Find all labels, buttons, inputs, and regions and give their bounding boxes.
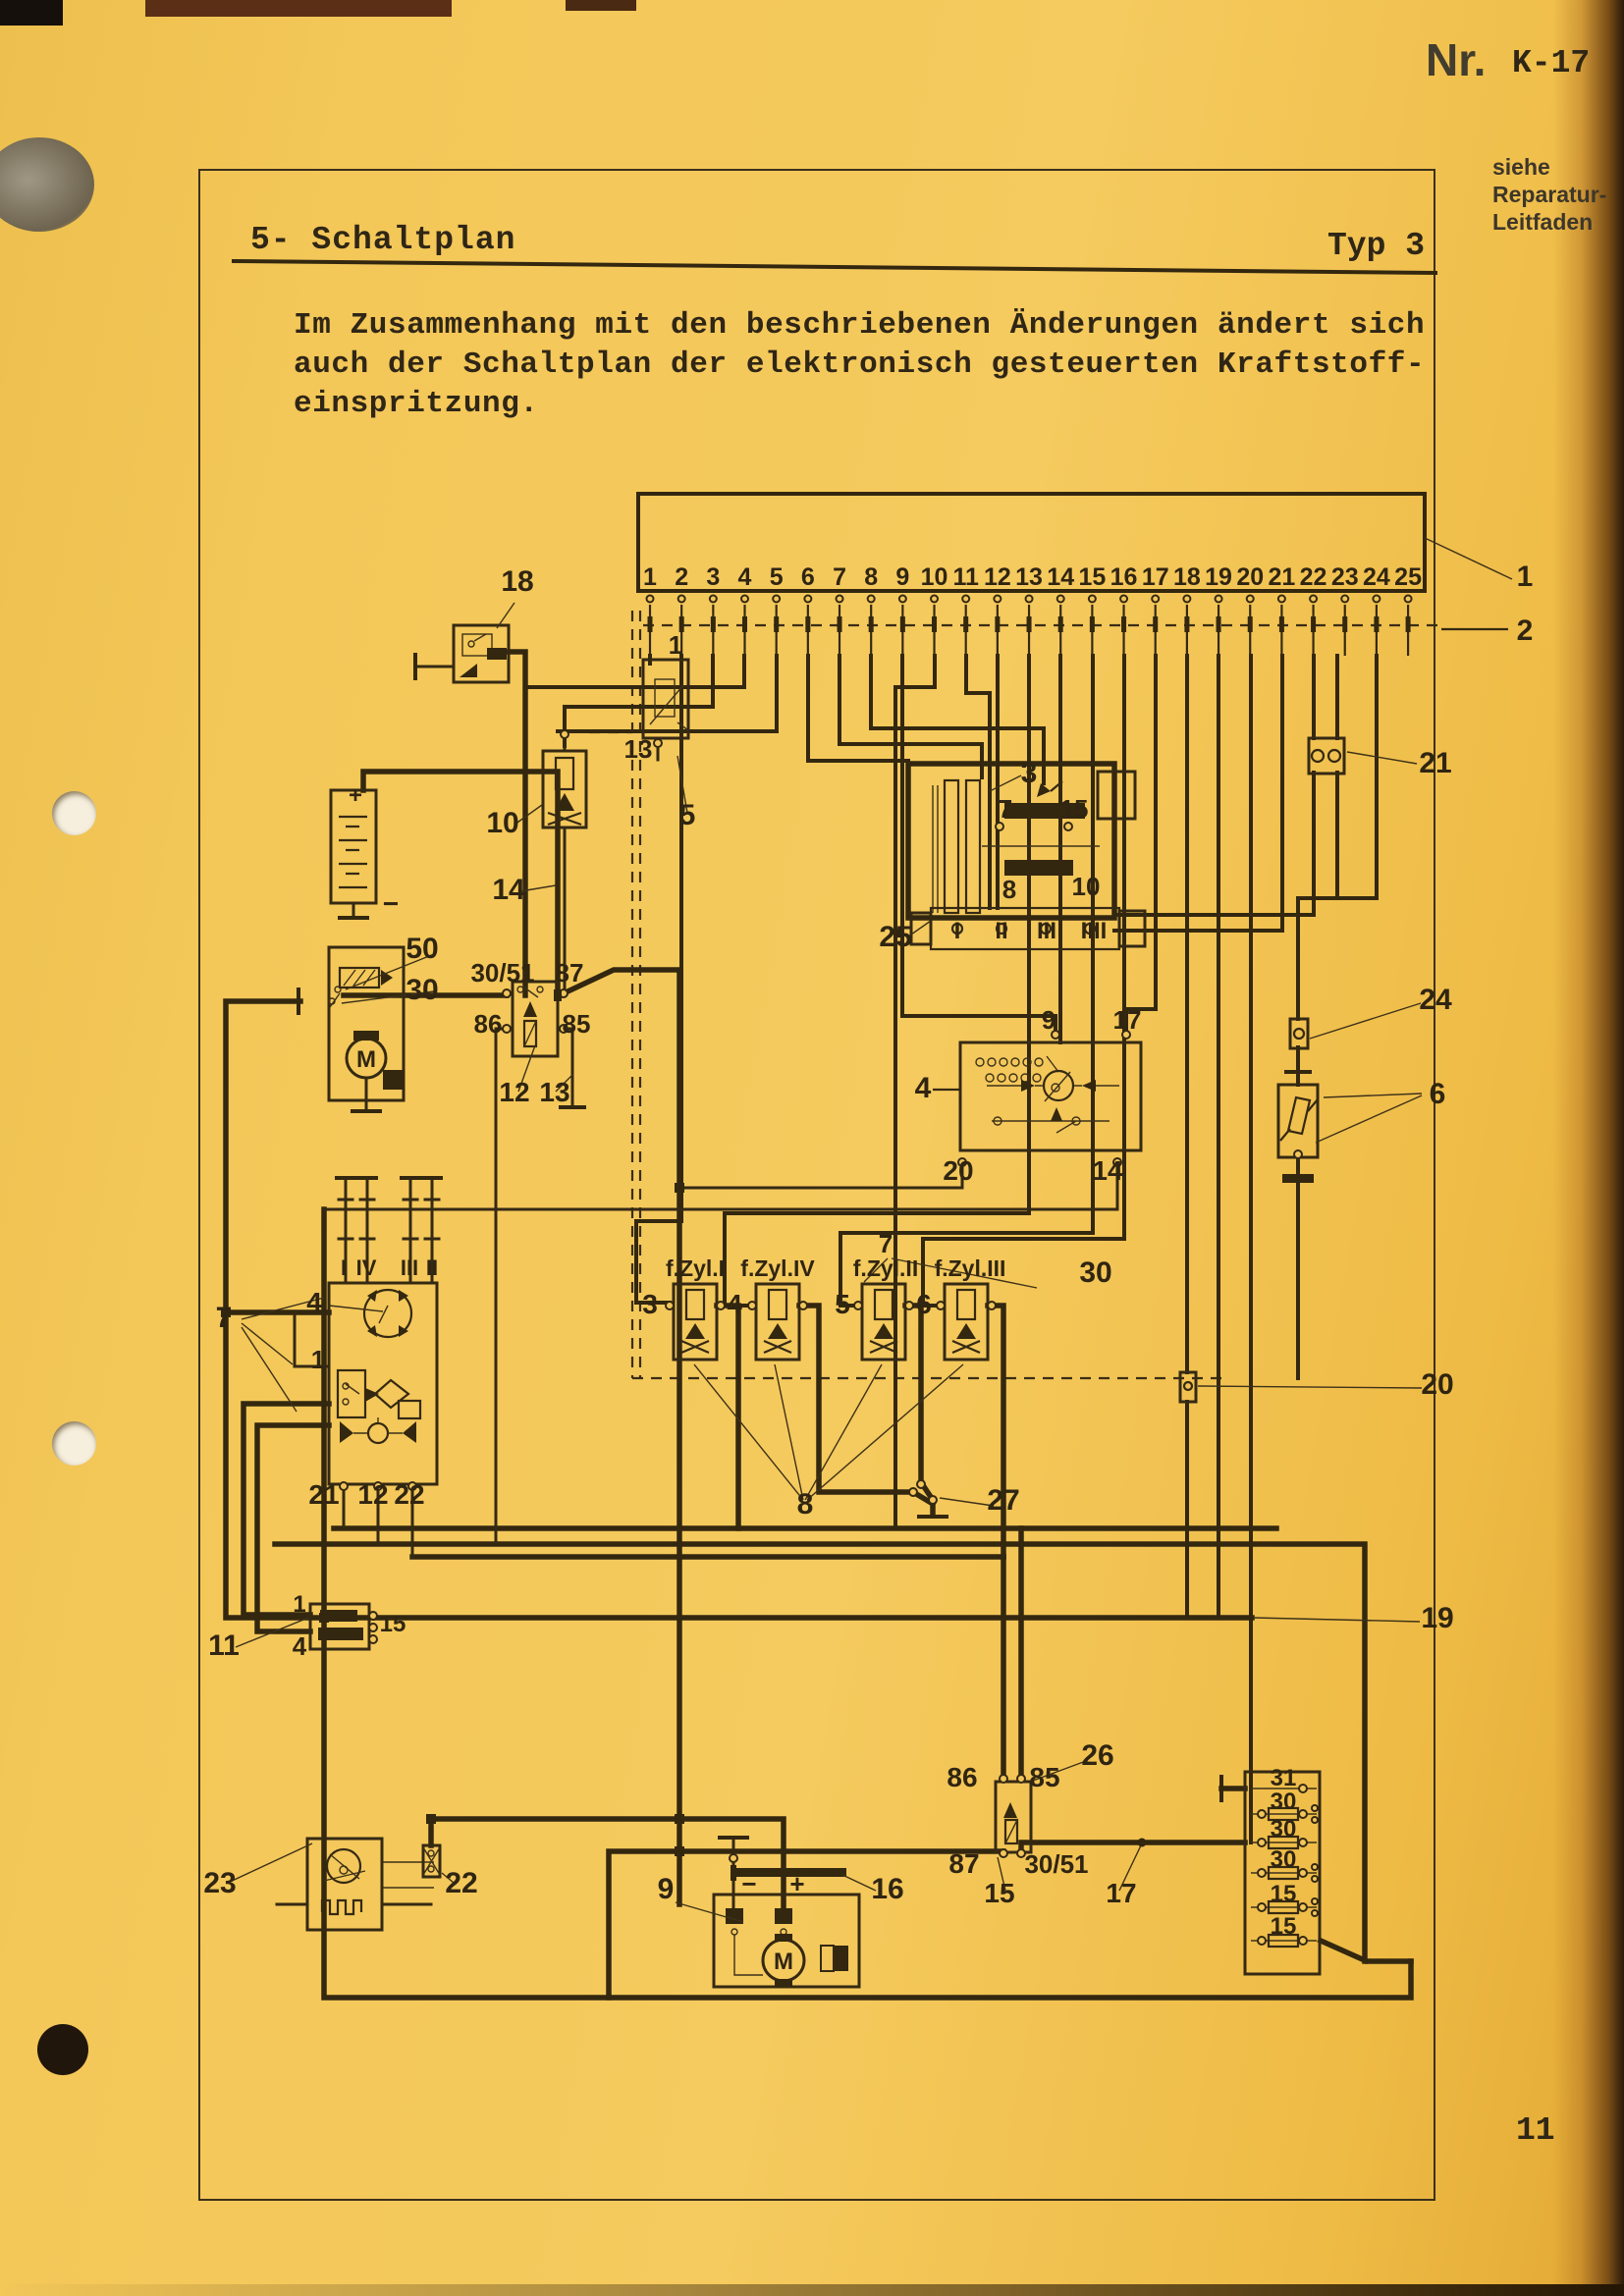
pin-number: 2 [675, 563, 688, 591]
diagram-label: 5 [679, 799, 696, 831]
ground-terminals [298, 655, 1221, 1838]
wire-tick [1027, 616, 1032, 632]
pin-number: 1 [643, 563, 657, 591]
diagram-label: f.Zyl.II [853, 1255, 918, 1281]
control-unit-pins: 1234567891011121314151617181920212223242… [643, 563, 1422, 656]
pin-contact [678, 596, 685, 603]
diagram-label: III [1037, 918, 1056, 944]
diagram-label: 23 [203, 1867, 236, 1899]
pin-contact [1183, 596, 1190, 603]
diagram-label: M [356, 1046, 376, 1073]
diagram-label: 11 [208, 1629, 240, 1662]
pin-contact [931, 596, 938, 603]
diagram-label: − [383, 888, 399, 919]
pin-contact [1405, 596, 1412, 603]
pin-contact [1089, 596, 1096, 603]
pin-number: 8 [864, 563, 878, 591]
diagram-label: 85 [563, 1009, 591, 1039]
wire-tick [932, 616, 937, 632]
wire-tick [869, 616, 874, 632]
diagram-label: 25 [879, 921, 911, 953]
injectors [666, 1258, 1037, 1506]
pin-number: 12 [984, 563, 1011, 591]
diagram-label: f.Zyl.III [935, 1255, 1006, 1281]
diagram-label: 14 [1092, 1155, 1123, 1186]
wire-tick [1090, 616, 1095, 632]
diagram-label: 13 [539, 1077, 569, 1107]
pin-number: 10 [921, 563, 948, 591]
diagram-label: M [774, 1949, 793, 1975]
diagram-label: 9 [1042, 1005, 1056, 1035]
pin-number: 7 [833, 563, 846, 591]
diagram-label: f.Zyl.I [666, 1255, 725, 1281]
diagram-label: 2 [1517, 614, 1534, 647]
pin-number: 18 [1173, 563, 1201, 591]
diagram-label: 4 [727, 1289, 742, 1319]
pin-number: 21 [1268, 563, 1295, 591]
pin-contact [1310, 596, 1317, 603]
diagram-label: IIII [1081, 918, 1108, 944]
diagram-label: 13 [624, 734, 653, 764]
pin-number: 25 [1394, 563, 1422, 591]
pin-contact [804, 596, 811, 603]
diagram-label: 30/51 [470, 958, 534, 988]
scanned-page: Nr. K-17 siehe Reparatur- Leitfaden 5- S… [0, 0, 1624, 2296]
pin-contact [1373, 596, 1380, 603]
pin-number: 5 [770, 563, 784, 591]
diagram-label: 19 [1421, 1602, 1453, 1634]
pin-number: 14 [1047, 563, 1074, 591]
pin-number: 13 [1015, 563, 1043, 591]
wire-tick [900, 616, 905, 632]
wire-tick [1153, 616, 1158, 632]
diagram-label: 30/51 [1024, 1849, 1088, 1879]
pin-contact [1152, 596, 1159, 603]
diagram-label: 86 [474, 1009, 503, 1039]
pin-number: 16 [1110, 563, 1138, 591]
pin-contact [773, 596, 780, 603]
diagram-label: 27 [987, 1484, 1019, 1517]
wire-tick [1279, 616, 1284, 632]
pin-contact [647, 596, 654, 603]
pin-number: 17 [1142, 563, 1169, 591]
diagram-label: 15 [1271, 1881, 1297, 1907]
pin-number: 9 [895, 563, 909, 591]
pin-contact [1026, 596, 1033, 603]
diagram-label: I [341, 1255, 347, 1280]
wire-tick [995, 616, 1000, 632]
starter [329, 947, 434, 1100]
diagram-label: 17 [1106, 1878, 1136, 1908]
diagram-label: 22 [394, 1479, 424, 1510]
diagram-label: 7 [879, 1229, 893, 1258]
diagram-label: 7 [216, 1302, 233, 1334]
diagram-label: 4 [915, 1072, 932, 1104]
diagram-label: 30 [1271, 1816, 1297, 1842]
diagram-label: 5 [835, 1289, 850, 1319]
diagram-label: 10 [1072, 872, 1101, 901]
throttle-switch-4 [933, 1031, 1141, 1166]
harness-dashed-boundary [589, 611, 1508, 1378]
wire-tick [838, 616, 842, 632]
wire-tick [1406, 616, 1411, 632]
diagram-label: 1 [669, 630, 682, 660]
pin-contact [994, 596, 1001, 603]
diagram-label: IV [356, 1255, 377, 1280]
wire-tick [774, 616, 779, 632]
pin-number: 15 [1078, 563, 1106, 591]
diagram-label: 10 [486, 807, 518, 839]
diagram-label: 87 [556, 958, 584, 988]
diagram-label: 6 [916, 1289, 932, 1319]
pin-number: 4 [738, 563, 752, 591]
diagram-label: 7 [999, 794, 1012, 824]
wire-tick [1121, 616, 1126, 632]
supply-wires [226, 652, 1411, 1998]
pin-contact [1247, 596, 1254, 603]
diagram-label: 16 [871, 1873, 903, 1905]
diagram-label: 1 [311, 1345, 325, 1374]
diagram-label: 15 [984, 1878, 1014, 1908]
pin-contact [710, 596, 717, 603]
pin-contact [868, 596, 875, 603]
diagram-label: 9 [658, 1873, 675, 1905]
pin-number: 11 [952, 563, 979, 591]
gauge-23 [228, 1839, 382, 1930]
pin-contact [1341, 596, 1348, 603]
diagram-label: III [401, 1255, 418, 1280]
diagram-label: f.Zyl.IV [740, 1255, 815, 1281]
pin-contact [962, 596, 969, 603]
diagram-label: I [954, 918, 961, 944]
ignition-assembly-3 [908, 764, 1145, 949]
wire-tick [805, 616, 810, 632]
wire-tick [1342, 616, 1347, 632]
diagram-label: 20 [943, 1155, 973, 1186]
diagram-label: 22 [445, 1867, 477, 1899]
diagram-label: 20 [1421, 1368, 1453, 1401]
connector-21 [1309, 738, 1417, 774]
pin-number: 24 [1363, 563, 1390, 591]
diagram-label: 26 [1081, 1739, 1113, 1772]
pin-number: 19 [1205, 563, 1232, 591]
diagram-label: + [789, 1869, 804, 1898]
diagram-label: II [995, 918, 1007, 944]
connector-20 [1180, 1372, 1422, 1622]
diagram-label: 85 [1029, 1762, 1059, 1792]
pin-number: 20 [1236, 563, 1264, 591]
diagram-label: 18 [501, 565, 533, 598]
connector-24 [1290, 1003, 1421, 1048]
diagram-label: 12 [357, 1479, 388, 1510]
diagram-label: 15 [1271, 1913, 1297, 1940]
diagram-label: 30 [406, 974, 438, 1006]
wire-tick [1374, 616, 1379, 632]
diagram-label: 1 [1517, 561, 1534, 593]
diagram-label: 21 [1419, 747, 1451, 779]
pin-contact [1120, 596, 1127, 603]
diagram-label: − [741, 1869, 756, 1898]
diagram-label: 3 [642, 1289, 658, 1319]
wiring-schematic: 1234567891011121314151617181920212223242… [0, 0, 1624, 2296]
switch-18 [454, 603, 514, 682]
pin-contact [899, 596, 906, 603]
diagram-label: 14 [492, 874, 525, 906]
diagram-label: 6 [1430, 1078, 1446, 1110]
wire-tick [1184, 616, 1189, 632]
diagram-label: 86 [947, 1762, 977, 1792]
diagram-label: 12 [499, 1077, 529, 1107]
pin-contact [1057, 596, 1064, 603]
pin-contact [837, 596, 843, 603]
wire-tick [742, 616, 747, 632]
diagram-label: 21 [308, 1479, 339, 1510]
diagram-label: 8 [1002, 875, 1016, 904]
pin-number: 23 [1331, 563, 1359, 591]
diagram-label: 4 [306, 1287, 322, 1317]
diagram-label: 31 [1271, 1765, 1297, 1791]
diagram-label: 3 [1021, 757, 1038, 789]
pin-contact [741, 596, 748, 603]
junction-ticks [221, 989, 736, 1881]
diagram-label: 17 [1113, 1005, 1142, 1035]
diagram-label: + [349, 782, 362, 809]
diagram-label: 87 [948, 1848, 979, 1879]
diagram-label: 1 [293, 1591, 305, 1618]
wire-tick [1311, 616, 1316, 632]
diagram-label: 8 [797, 1488, 814, 1521]
wire-tick [1058, 616, 1063, 632]
diagram-label: 30 [1271, 1789, 1297, 1815]
pin-number: 22 [1300, 563, 1327, 591]
wire-tick [648, 616, 653, 632]
diagram-label: 15 [380, 1611, 406, 1637]
wire-tick [963, 616, 968, 632]
pin-contact [1216, 596, 1222, 603]
diagram-label: 15 [1060, 794, 1089, 824]
diagram-label: 30 [1271, 1846, 1297, 1873]
pin-number: 6 [801, 563, 815, 591]
diagram-label: II [426, 1255, 438, 1280]
heading-underline [234, 261, 1435, 273]
diagram-label: 24 [1419, 984, 1452, 1016]
diagram-label: 4 [293, 1631, 307, 1661]
diagram-label: 30 [1079, 1256, 1111, 1289]
wire-tick [1217, 616, 1221, 632]
pin-contact [1278, 596, 1285, 603]
pin-wires [525, 656, 1377, 1842]
wire-tick [1248, 616, 1253, 632]
wire-tick [711, 616, 716, 632]
diagram-label: 50 [406, 933, 438, 965]
pin-number: 3 [706, 563, 720, 591]
